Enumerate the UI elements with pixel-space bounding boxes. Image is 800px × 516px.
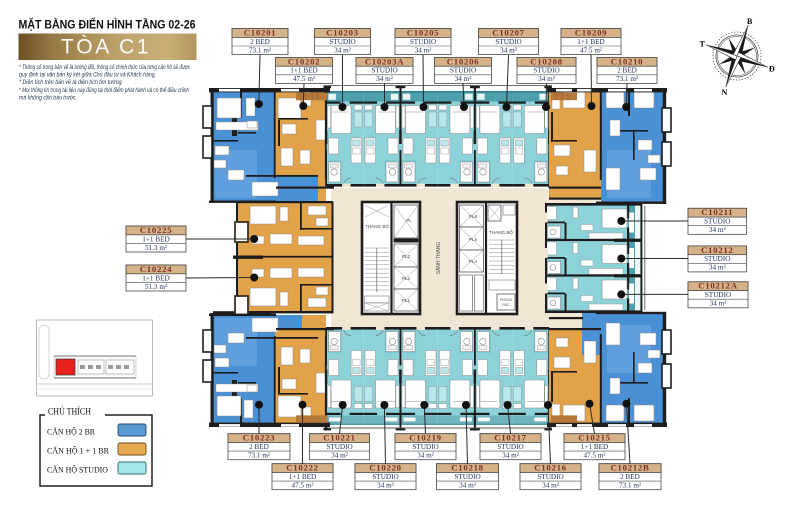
svg-text:PL6: PL6 [469,214,478,219]
svg-text:N: N [721,88,727,97]
svg-text:C10224: C10224 [140,264,173,274]
svg-text:STUDIO: STUDIO [412,443,438,451]
svg-text:34 m²: 34 m² [331,452,348,460]
svg-text:34 m²: 34 m² [502,452,519,460]
svg-text:STUDIO: STUDIO [704,255,730,263]
svg-text:C10211: C10211 [701,207,733,217]
svg-text:34 m²: 34 m² [459,482,476,490]
svg-text:C10205: C10205 [407,28,440,38]
svg-text:C10209: C10209 [575,28,608,38]
svg-text:* Mọi thông tin trong tài liệu: * Mọi thông tin trong tài liệu này đúng … [19,87,189,94]
svg-text:Đ: Đ [769,65,775,74]
svg-text:CĂN HỘ 1 + 1 BR: CĂN HỘ 1 + 1 BR [47,446,109,456]
svg-text:73.1 m²: 73.1 m² [619,482,641,490]
svg-text:C10212: C10212 [701,245,734,255]
svg-text:C10202: C10202 [288,56,321,66]
svg-text:47.5 m²: 47.5 m² [293,75,315,83]
svg-text:PL2: PL2 [402,276,411,281]
svg-text:34 m²: 34 m² [417,452,434,460]
svg-text:TÒA C1: TÒA C1 [61,36,151,59]
svg-text:PL: PL [406,218,412,223]
svg-text:STUDIO: STUDIO [410,38,436,46]
svg-text:34 m²: 34 m² [334,46,351,54]
svg-text:mà không cần báo trước.: mà không cần báo trước. [19,94,77,101]
svg-text:1+1 BED: 1+1 BED [577,38,604,46]
svg-text:C10216: C10216 [534,463,567,473]
svg-text:34 m²: 34 m² [709,264,726,272]
svg-text:PHÒNG: PHÒNG [500,297,513,302]
svg-text:RÁC: RÁC [502,303,510,307]
svg-text:47.5 m²: 47.5 m² [583,452,605,460]
svg-text:2 BED: 2 BED [617,67,637,75]
svg-text:quy định tại văn bản ký kết gi: quy định tại văn bản ký kết giữa Chủ đầu… [19,72,156,79]
svg-text:SẢNH THANG: SẢNH THANG [435,242,442,275]
svg-text:MẶT BẰNG ĐIỂN HÌNH TẦNG 02-26: MẶT BẰNG ĐIỂN HÌNH TẦNG 02-26 [19,19,196,32]
svg-text:34 m²: 34 m² [538,75,555,83]
svg-text:1+1 BED: 1+1 BED [142,235,169,243]
svg-text:34 m²: 34 m² [500,46,517,54]
svg-text:47.5 m²: 47.5 m² [291,482,313,490]
svg-text:STUDIO: STUDIO [372,473,398,481]
svg-text:STUDIO: STUDIO [371,67,397,75]
svg-text:73.1 m²: 73.1 m² [248,452,270,460]
svg-text:34 m²: 34 m² [377,482,394,490]
svg-text:2 BED: 2 BED [620,473,640,481]
svg-text:THANG BỘ: THANG BỘ [489,229,513,235]
svg-text:PL1: PL1 [402,298,411,303]
svg-text:STUDIO: STUDIO [329,38,355,46]
svg-text:C10221: C10221 [323,433,356,443]
svg-text:C10223: C10223 [243,433,276,443]
svg-text:* Thông số trong bản vẽ là tươ: * Thông số trong bản vẽ là tương đối, th… [19,64,190,71]
svg-text:2 BED: 2 BED [249,443,269,451]
svg-text:34 m²: 34 m² [542,482,559,490]
svg-text:C10208: C10208 [530,56,563,66]
svg-text:1+1 BED: 1+1 BED [290,67,317,75]
svg-text:2 BED: 2 BED [250,38,270,46]
svg-text:C10222: C10222 [286,463,319,473]
svg-text:STUDIO: STUDIO [326,443,352,451]
svg-text:C10201: C10201 [244,28,277,38]
svg-text:34 m²: 34 m² [710,300,727,308]
svg-text:C10210: C10210 [611,56,644,66]
svg-text:T: T [700,39,706,48]
svg-text:34 m²: 34 m² [415,46,432,54]
svg-text:C10212B: C10212B [610,463,649,473]
svg-text:51.3 m²: 51.3 m² [145,283,167,291]
svg-text:STUDIO: STUDIO [705,291,731,299]
svg-text:C10206: C10206 [447,56,480,66]
svg-text:STUDIO: STUDIO [454,473,480,481]
svg-text:C10215: C10215 [578,433,611,443]
svg-text:1+1 BED: 1+1 BED [142,274,169,282]
svg-text:B: B [747,17,753,26]
svg-text:73.1 m²: 73.1 m² [616,75,638,83]
svg-text:STUDIO: STUDIO [495,38,521,46]
svg-text:STUDIO: STUDIO [537,473,563,481]
svg-text:C10217: C10217 [494,433,527,443]
svg-text:CĂN HỘ STUDIO: CĂN HỘ STUDIO [47,465,108,475]
svg-text:C10207: C10207 [492,28,525,38]
svg-text:STUDIO: STUDIO [450,67,476,75]
svg-text:1+1 BED: 1+1 BED [289,473,316,481]
svg-text:34 m²: 34 m² [376,75,393,83]
svg-text:PL4: PL4 [469,259,478,264]
svg-text:STUDIO: STUDIO [704,218,730,226]
svg-text:C10220: C10220 [369,463,402,473]
svg-text:C10225: C10225 [140,225,173,235]
svg-text:C10212A: C10212A [698,281,738,291]
svg-text:34 m²: 34 m² [455,75,472,83]
svg-text:73.1 m²: 73.1 m² [249,46,271,54]
svg-text:* Diện tích trên bản vẽ là diệ: * Diện tích trên bản vẽ là diện tích tim… [19,79,123,86]
svg-text:STUDIO: STUDIO [533,67,559,75]
svg-text:34 m²: 34 m² [709,226,726,234]
svg-text:C10203A: C10203A [365,56,405,66]
svg-text:C10203: C10203 [326,28,359,38]
svg-text:STUDIO: STUDIO [497,443,523,451]
svg-text:51.3 m²: 51.3 m² [145,244,167,252]
svg-text:47.5 m²: 47.5 m² [580,46,602,54]
svg-text:THANG BỘ: THANG BỘ [365,223,389,229]
svg-text:PL5: PL5 [469,237,478,242]
svg-text:CHÚ THÍCH: CHÚ THÍCH [48,407,91,417]
svg-text:CĂN HỘ 2 BR: CĂN HỘ 2 BR [47,427,95,437]
svg-text:C10219: C10219 [409,433,442,443]
svg-text:1+1 BED: 1+1 BED [581,443,608,451]
svg-text:C10218: C10218 [451,463,484,473]
svg-text:PL3: PL3 [402,254,411,259]
